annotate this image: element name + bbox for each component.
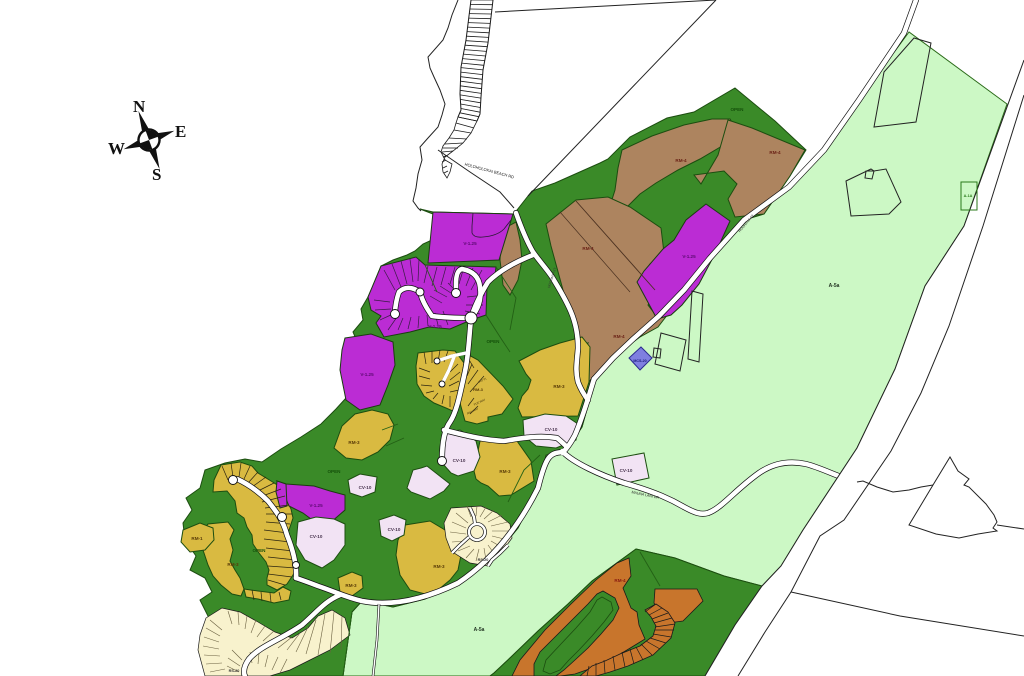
- svg-text:OPEN: OPEN: [252, 548, 266, 553]
- svg-text:A-1A: A-1A: [964, 194, 973, 198]
- svg-text:V-1.25: V-1.25: [463, 241, 477, 246]
- svg-text:RM-3: RM-3: [345, 583, 357, 588]
- svg-text:RM-3: RM-3: [499, 469, 511, 474]
- svg-text:V-1.25: V-1.25: [309, 503, 323, 508]
- svg-text:W: W: [108, 139, 125, 158]
- svg-text:RM-3: RM-3: [227, 562, 239, 567]
- svg-text:E: E: [175, 122, 186, 141]
- svg-text:RM-3: RM-3: [348, 440, 360, 445]
- svg-text:CV-10: CV-10: [388, 527, 401, 532]
- svg-text:RM-4: RM-4: [613, 334, 625, 339]
- svg-text:V-1.25: V-1.25: [428, 324, 442, 329]
- svg-text:RM-3: RM-3: [553, 384, 565, 389]
- svg-text:RM-4: RM-4: [675, 158, 687, 163]
- svg-text:CV-10: CV-10: [620, 468, 633, 473]
- svg-text:N: N: [133, 97, 146, 116]
- svg-text:CV-10: CV-10: [310, 534, 323, 539]
- svg-text:A-5a: A-5a: [474, 627, 485, 633]
- svg-text:CV-10: CV-10: [545, 427, 558, 432]
- svg-text:A-5a: A-5a: [829, 283, 840, 289]
- svg-text:V-1.25: V-1.25: [682, 254, 696, 259]
- svg-text:OPEN: OPEN: [486, 339, 500, 344]
- svg-text:S: S: [152, 165, 161, 184]
- svg-text:CV-10: CV-10: [453, 458, 466, 463]
- svg-text:MCS-20: MCS-20: [633, 359, 646, 363]
- svg-text:RM-4: RM-4: [582, 246, 594, 251]
- svg-text:RM-3: RM-3: [433, 564, 445, 569]
- svg-text:RS-20: RS-20: [229, 669, 240, 673]
- svg-text:CV-10: CV-10: [359, 485, 372, 490]
- svg-text:RM-3: RM-3: [473, 387, 484, 392]
- svg-text:OPEN: OPEN: [327, 469, 341, 474]
- svg-text:RS-20: RS-20: [478, 558, 489, 562]
- svg-text:RM-4: RM-4: [769, 150, 781, 155]
- svg-text:V-1.25: V-1.25: [360, 372, 374, 377]
- svg-text:RM-4: RM-4: [614, 578, 626, 583]
- svg-text:RM-1: RM-1: [191, 536, 203, 541]
- svg-text:OPEN: OPEN: [730, 107, 744, 112]
